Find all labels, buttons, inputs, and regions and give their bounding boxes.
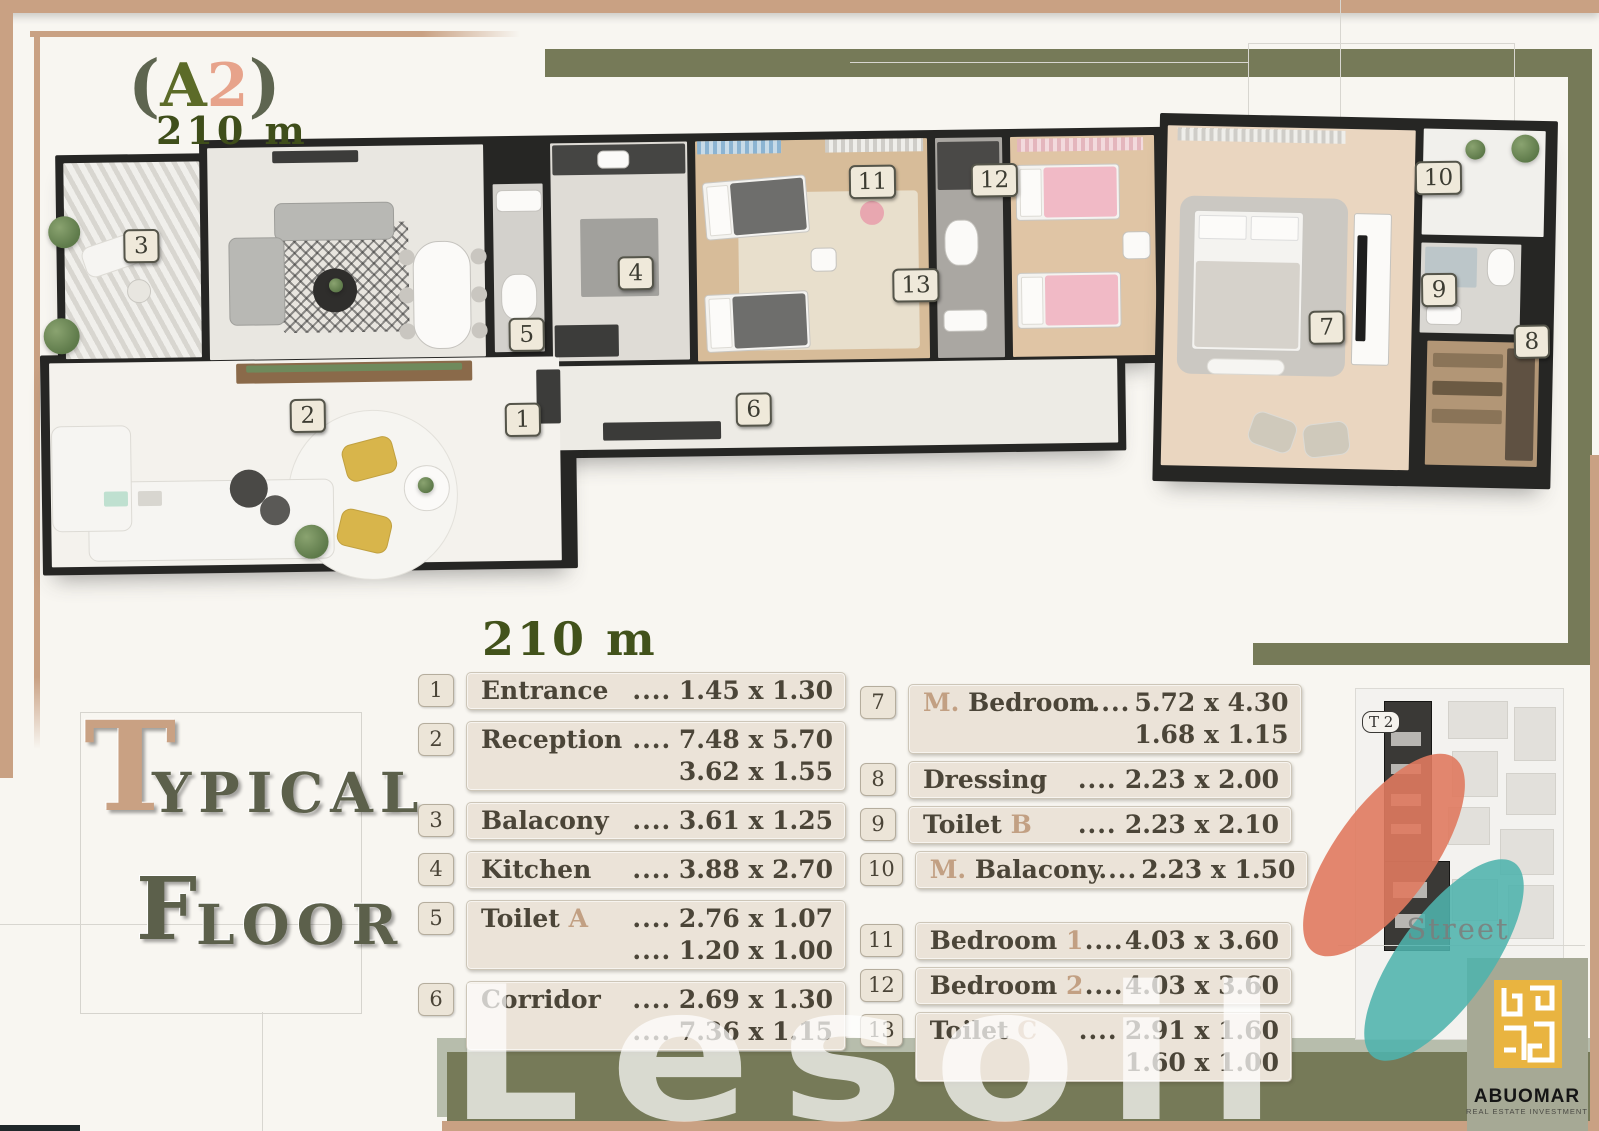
legend-room-name: M. Bedroom — [923, 687, 1087, 719]
room-name-accent: M. — [930, 855, 966, 884]
pillow — [1198, 215, 1246, 240]
title-word-floor: LOOR — [196, 892, 404, 957]
title-initial-f: F — [136, 862, 197, 958]
legend-row-number: 5 — [418, 902, 454, 935]
legend-dots: .... — [1070, 764, 1125, 796]
legend-dots: .... — [625, 805, 679, 837]
legend-dimensions: 3.61 x 1.25 — [679, 805, 833, 837]
legend-row: 3Balacony....3.61 x 1.25 — [418, 802, 846, 840]
legend-row-line: M. Bedroom....5.72 x 4.30 — [923, 687, 1289, 719]
bed — [1017, 271, 1122, 328]
map-olive-bar — [1253, 643, 1592, 665]
sink — [943, 309, 987, 332]
legend-row-number: 2 — [418, 723, 454, 756]
room-name-text: Balacony — [481, 806, 609, 835]
right-tan-bar — [1590, 455, 1599, 1131]
cushion — [138, 491, 162, 506]
legend-room-name: Toilet B — [923, 809, 1070, 841]
plan-marker-8: 8 — [1514, 324, 1550, 358]
legend-row-number: 4 — [418, 853, 454, 886]
legend-row-line: Reception....7.48 x 5.70 — [481, 724, 833, 756]
room-name-text: Dressing — [923, 765, 1047, 794]
room-name-text: Kitchen — [481, 855, 591, 884]
cushion — [104, 491, 128, 506]
plan-marker-10: 10 — [1415, 161, 1463, 196]
street-label: Street — [1378, 912, 1538, 946]
legend-row: 8Dressing....2.23 x 2.00 — [860, 761, 1292, 799]
legend-row: 7M. Bedroom....5.72 x 4.301.68 x 1.15 — [860, 684, 1292, 754]
bottom-left-strip — [0, 1125, 80, 1131]
legend-row-line: 3.62 x 1.55 — [481, 756, 833, 788]
legend-row-line: 1.68 x 1.15 — [923, 719, 1289, 751]
room-name-text: Toilet — [481, 904, 569, 933]
map-building — [1514, 707, 1556, 761]
legend-row-box: Dressing....2.23 x 2.00 — [908, 761, 1292, 799]
decor-line — [262, 1012, 263, 1131]
legend-dots: .... — [625, 675, 679, 707]
curtain — [825, 138, 923, 152]
legend-dimensions: 2.23 x 2.10 — [1125, 809, 1279, 841]
bed — [704, 290, 811, 353]
toilet-wc — [944, 219, 979, 265]
legend-row-line: Dressing....2.23 x 2.00 — [923, 764, 1279, 796]
legend-row: 1Entrance....1.45 x 1.30 — [418, 672, 846, 710]
right-olive-bar — [1568, 49, 1592, 663]
sofa — [228, 237, 285, 326]
legend-row-number: 10 — [860, 853, 903, 886]
legend-row-number: 9 — [860, 808, 896, 841]
legend-room-name: M. Balacony — [930, 854, 1095, 886]
pillow — [1021, 277, 1044, 325]
left-frame-bar — [0, 0, 13, 778]
legend-dots: .... — [1070, 809, 1125, 841]
legend-row-number: 8 — [860, 763, 896, 796]
dining-chair — [472, 322, 488, 338]
dining-table — [412, 241, 472, 350]
pillow — [708, 298, 733, 349]
sofa — [274, 202, 395, 242]
title-word-typical: YPICAL — [152, 760, 425, 825]
legend-row-number: 1 — [418, 674, 454, 707]
plan-marker-4: 4 — [618, 256, 654, 290]
pillow — [1250, 216, 1298, 241]
sink — [496, 190, 542, 213]
plan-marker-1: 1 — [505, 403, 541, 437]
floorplan-poster: ( A 2 ) 210 m — [0, 0, 1599, 1131]
dressing-shelf — [1433, 353, 1503, 368]
legend-dimensions: 1.45 x 1.30 — [679, 675, 833, 707]
legend-dots: .... — [625, 724, 679, 756]
legend-room-name: Toilet A — [481, 903, 625, 935]
legend-dots: .... — [625, 903, 679, 935]
plan-marker-9: 9 — [1421, 273, 1457, 307]
legend-row-line: Kitchen....3.88 x 2.70 — [481, 854, 833, 886]
legend-row: 10M. Balacony....2.23 x 1.50 — [860, 851, 1292, 889]
map-building — [1506, 773, 1556, 815]
bed — [1015, 163, 1120, 220]
legend-row-box: Kitchen....3.88 x 2.70 — [466, 851, 846, 889]
legend-dimensions: 2.23 x 1.50 — [1141, 854, 1295, 886]
nightstand — [811, 247, 837, 271]
plan-marker-6: 6 — [736, 392, 772, 426]
legend-dots: .... — [625, 854, 679, 886]
legend-row-line: Toilet A....2.76 x 1.07 — [481, 903, 833, 935]
legend-dimensions: 3.88 x 2.70 — [679, 854, 833, 886]
room-name-accent: A — [569, 904, 588, 933]
legend-room-name: Kitchen — [481, 854, 625, 886]
blanket — [729, 178, 807, 236]
legend-dots: .... — [1087, 687, 1134, 719]
legend-dots: .... — [1094, 854, 1141, 886]
t2-unit-label: T 2 — [1362, 711, 1400, 733]
legend-room-name: Balacony — [481, 805, 625, 837]
top-frame-bar — [0, 0, 1599, 13]
decor-line — [850, 62, 1248, 63]
unit-area: 210 m — [156, 108, 309, 153]
curtain — [697, 140, 781, 154]
plan-marker-2: 2 — [290, 399, 326, 433]
wardrobe — [1505, 348, 1535, 461]
sectional-sofa — [51, 425, 132, 532]
room-name-text: Balacony — [966, 855, 1102, 884]
t2-room-mark — [1391, 732, 1421, 746]
legend-room-name: Dressing — [923, 764, 1070, 796]
room-name-text: Toilet — [923, 810, 1011, 839]
legend-row-number: 3 — [418, 804, 454, 837]
blanket — [1194, 261, 1300, 349]
dressing-shelf — [1432, 381, 1502, 396]
blanket — [732, 293, 808, 349]
legend-row-box: M. Bedroom....5.72 x 4.301.68 x 1.15 — [908, 684, 1302, 754]
bed — [702, 174, 810, 240]
legend-row-line: Toilet B....2.23 x 2.10 — [923, 809, 1279, 841]
master-bed — [1191, 210, 1304, 352]
legend-row-box: Reception....7.48 x 5.703.62 x 1.55 — [466, 721, 846, 791]
legend-room-name: Entrance — [481, 675, 625, 707]
legend-row-line: M. Balacony....2.23 x 1.50 — [930, 854, 1296, 886]
pillow — [706, 185, 732, 237]
plan-marker-13: 13 — [892, 268, 940, 303]
legend-row-number: 7 — [860, 686, 896, 719]
legend-row-box: M. Balacony....2.23 x 1.50 — [915, 851, 1309, 889]
sink — [1426, 305, 1462, 326]
legend-dimensions: 2.76 x 1.07 — [679, 903, 833, 935]
room-name-text: Reception — [481, 725, 622, 754]
legend-row-box: Toilet B....2.23 x 2.10 — [908, 806, 1292, 844]
legend-row-line: Entrance....1.45 x 1.30 — [481, 675, 833, 707]
room-name-accent: B — [1011, 810, 1032, 839]
armchair — [1301, 420, 1351, 459]
plan-marker-12: 12 — [971, 163, 1019, 198]
curtain — [1017, 137, 1143, 152]
floor-plan: 12345678910111213 — [37, 109, 1555, 600]
blanket — [1044, 274, 1118, 325]
plan-marker-3: 3 — [123, 229, 159, 263]
kitchen-sink — [597, 150, 629, 168]
room-name-accent: M. — [923, 688, 959, 717]
legend-room-name: Reception — [481, 724, 625, 756]
legend-dimensions: 1.68 x 1.15 — [1134, 719, 1288, 751]
brand-name: ABUOMAR — [1462, 1086, 1592, 1108]
nightstand — [1122, 231, 1150, 259]
pillow — [1019, 169, 1042, 217]
legend-area-heading: 210 m — [482, 612, 658, 666]
legend-dimensions: 2.23 x 2.00 — [1125, 764, 1279, 796]
legend-row: 4Kitchen....3.88 x 2.70 — [418, 851, 846, 889]
legend-row-box: Entrance....1.45 x 1.30 — [466, 672, 846, 710]
legend-row-box: Balacony....3.61 x 1.25 — [466, 802, 846, 840]
legend-row-line: Balacony....3.61 x 1.25 — [481, 805, 833, 837]
top-frame-line — [30, 31, 520, 37]
room-name-text: Bedroom — [959, 688, 1095, 717]
toilet-wc — [1487, 248, 1516, 287]
room-name-text: Entrance — [481, 676, 608, 705]
plan-marker-7: 7 — [1308, 310, 1344, 344]
legend-dimensions: 3.62 x 1.55 — [679, 756, 833, 788]
kitchen-cabinet — [555, 324, 619, 357]
dressing-shelf — [1432, 409, 1502, 424]
plan-marker-11: 11 — [849, 165, 897, 200]
plant — [329, 278, 343, 292]
plan-marker-5: 5 — [508, 318, 544, 352]
brand-tagline: REAL ESTATE INVESTMENT — [1462, 1107, 1592, 1116]
blanket — [1043, 167, 1117, 218]
watermark: Lesoil — [448, 962, 1307, 1131]
bed-bench — [1207, 358, 1285, 376]
legend-row: 9Toilet B....2.23 x 2.10 — [860, 806, 1292, 844]
legend-dimensions: 5.72 x 4.30 — [1134, 687, 1288, 719]
master-wing — [1152, 113, 1558, 489]
sideboard — [603, 421, 721, 441]
legend-dimensions: 7.48 x 5.70 — [679, 724, 833, 756]
toilet-wc — [501, 274, 538, 320]
legend-row: 2Reception....7.48 x 5.703.62 x 1.55 — [418, 721, 846, 791]
map-building — [1448, 701, 1508, 739]
abuomar-kufic-logo-icon — [1494, 980, 1562, 1068]
